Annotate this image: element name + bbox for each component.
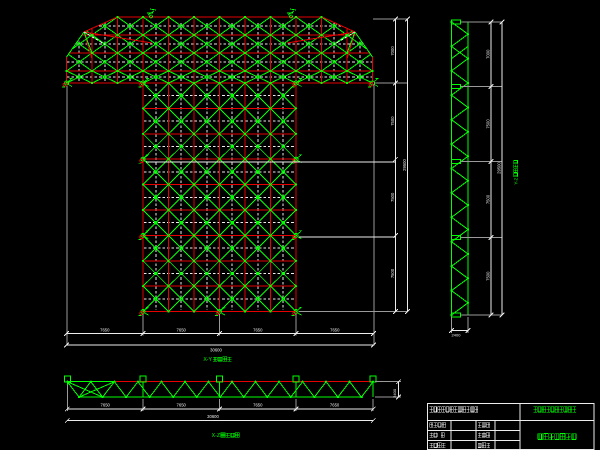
svg-text:2400: 2400 [392, 388, 397, 398]
svg-text:7000: 7000 [486, 49, 491, 59]
svg-text:X-Z: X-Z [212, 433, 220, 439]
svg-text:7500: 7500 [486, 194, 491, 204]
svg-text:7650: 7650 [100, 328, 110, 333]
svg-text:2400: 2400 [452, 333, 462, 338]
svg-text:7650: 7650 [177, 403, 187, 408]
svg-text:29500: 29500 [497, 162, 502, 174]
svg-text:29500: 29500 [402, 159, 407, 171]
svg-text:7650: 7650 [330, 328, 340, 333]
svg-text:7500: 7500 [390, 116, 395, 126]
svg-text:7500: 7500 [486, 271, 491, 281]
svg-text:7650: 7650 [330, 403, 340, 408]
svg-text:7500: 7500 [390, 268, 395, 278]
svg-text:7650: 7650 [101, 403, 111, 408]
svg-text:7650: 7650 [253, 403, 263, 408]
svg-text:7000: 7000 [390, 46, 395, 56]
svg-text:Y-Z: Y-Z [514, 177, 520, 184]
svg-text:30600: 30600 [210, 348, 222, 353]
svg-text:X-Y: X-Y [203, 357, 212, 363]
svg-text:7500: 7500 [390, 192, 395, 202]
svg-text:7500: 7500 [486, 119, 491, 129]
svg-text:7650: 7650 [253, 328, 263, 333]
svg-text:30600: 30600 [207, 414, 219, 419]
svg-text:7650: 7650 [177, 328, 187, 333]
